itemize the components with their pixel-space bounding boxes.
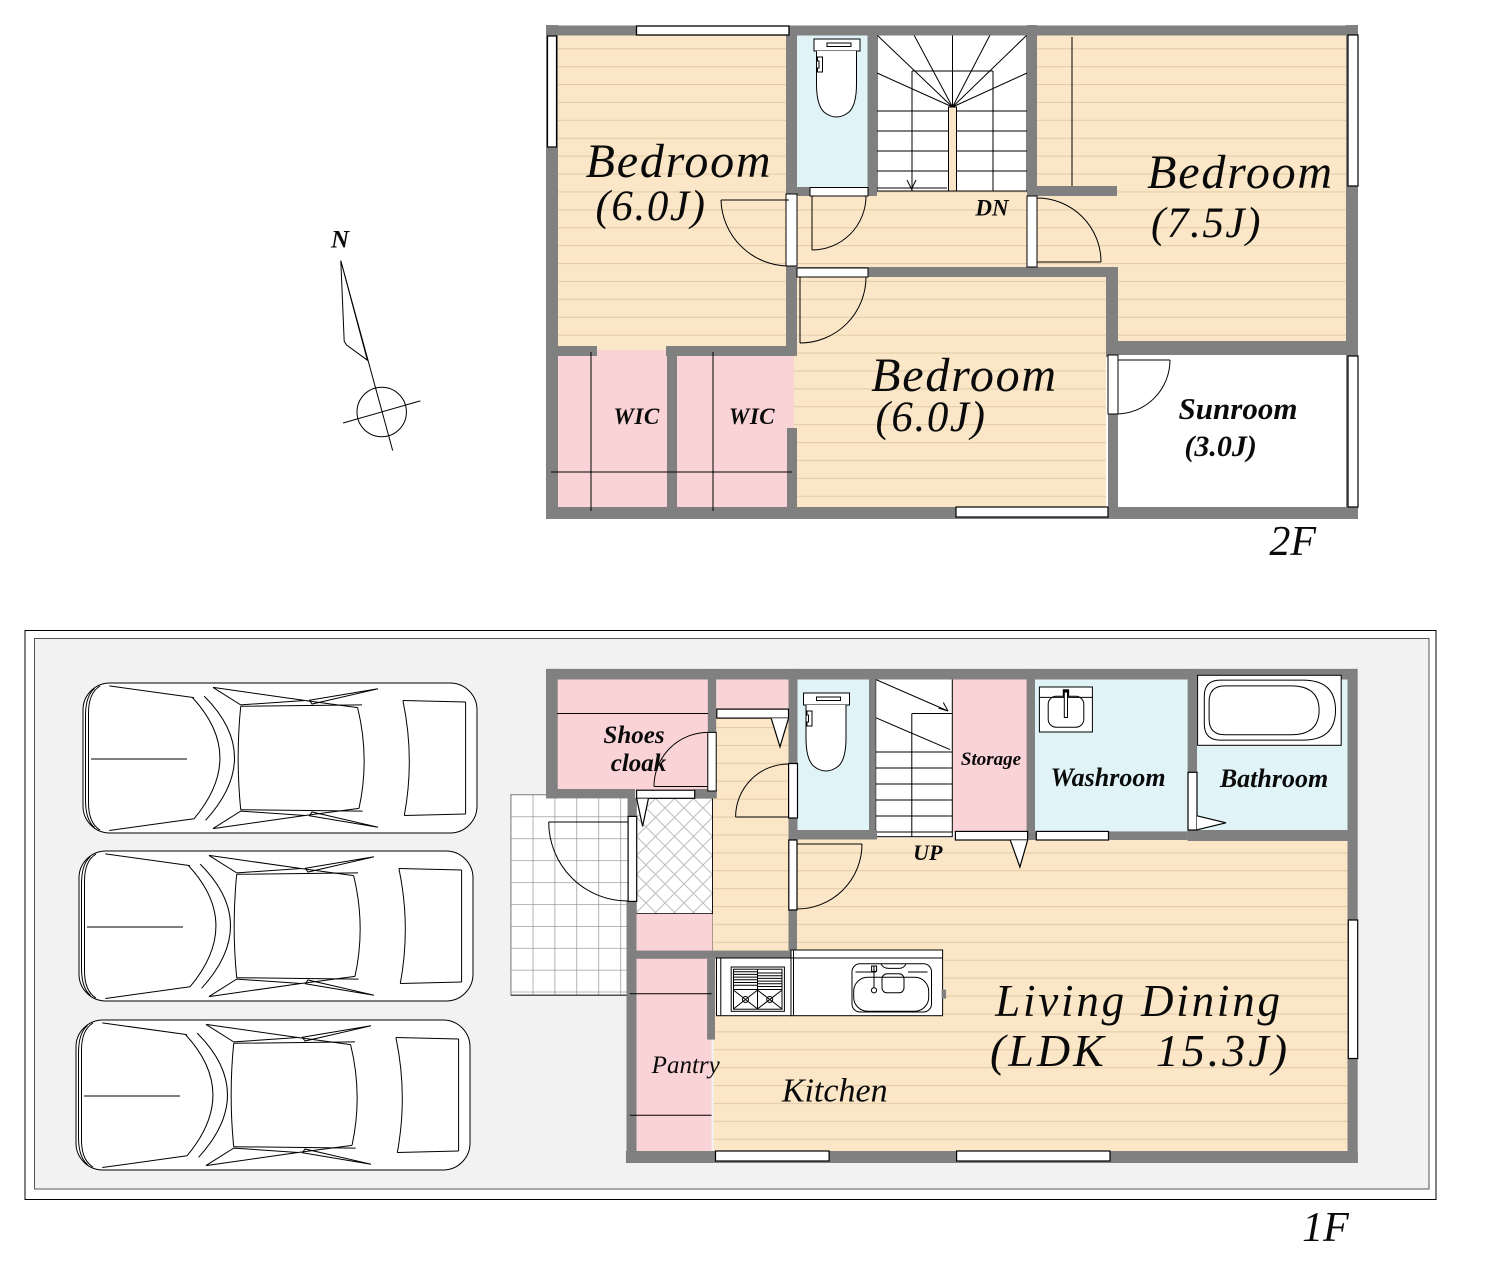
svg-text:Shoes: Shoes: [603, 722, 664, 749]
svg-text:Bathroom: Bathroom: [1219, 764, 1328, 793]
svg-text:Washroom: Washroom: [1050, 763, 1165, 792]
svg-text:Storage: Storage: [961, 749, 1022, 770]
svg-text:Bedroom: Bedroom: [1147, 146, 1334, 199]
svg-text:(LDK 15.3J): (LDK 15.3J): [990, 1025, 1290, 1076]
svg-text:(3.0J): (3.0J): [1184, 430, 1256, 463]
svg-text:N: N: [330, 227, 350, 254]
svg-text:1F: 1F: [1302, 1205, 1349, 1251]
svg-text:Sunroom: Sunroom: [1179, 391, 1298, 426]
svg-text:Living Dining: Living Dining: [994, 976, 1283, 1026]
svg-text:WIC: WIC: [613, 404, 659, 429]
svg-text:(6.0J): (6.0J): [875, 394, 986, 441]
svg-text:Kitchen: Kitchen: [781, 1073, 888, 1110]
svg-text:(6.0J): (6.0J): [595, 183, 706, 230]
svg-text:WIC: WIC: [729, 404, 775, 429]
svg-text:cloak: cloak: [611, 750, 667, 777]
svg-text:2F: 2F: [1269, 519, 1316, 565]
svg-text:Bedroom: Bedroom: [586, 135, 773, 188]
svg-text:(7.5J): (7.5J): [1151, 200, 1262, 247]
svg-text:DN: DN: [974, 196, 1010, 221]
svg-text:Pantry: Pantry: [651, 1052, 721, 1079]
svg-text:UP: UP: [913, 840, 943, 865]
